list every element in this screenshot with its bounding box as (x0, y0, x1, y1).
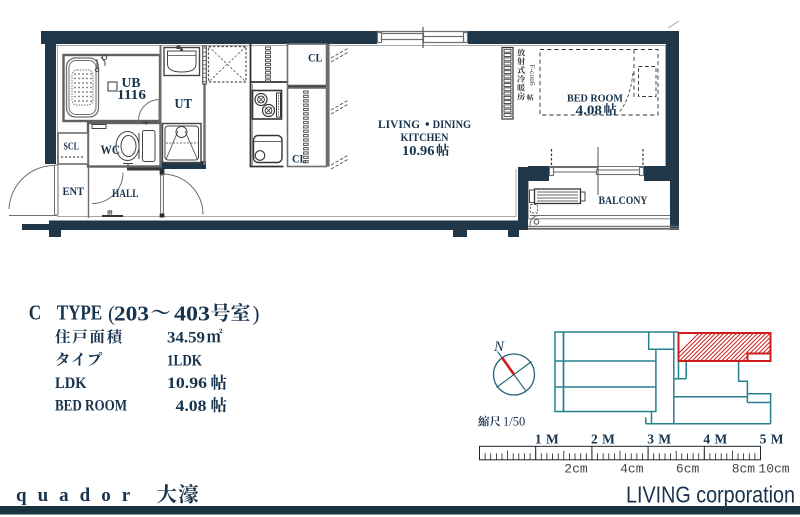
svg-text:3 M: 3 M (647, 432, 671, 447)
svg-text:DINING: DINING (433, 119, 472, 131)
svg-text:BALCONY: BALCONY (599, 195, 648, 207)
svg-text:1LDK: 1LDK (167, 352, 202, 369)
svg-text:CL: CL (292, 154, 307, 166)
svg-text:WC: WC (101, 143, 121, 157)
svg-text:TYPE: TYPE (57, 301, 102, 325)
svg-text:4.08: 4.08 (576, 103, 603, 118)
svg-text:1 M: 1 M (535, 432, 559, 447)
svg-text:2 M: 2 M (591, 432, 615, 447)
svg-text:HALL: HALL (112, 188, 139, 200)
svg-text:34.59: 34.59 (167, 330, 205, 347)
svg-text:5 M: 5 M (760, 432, 784, 447)
svg-text:4cm: 4cm (620, 462, 644, 477)
svg-text:quador: quador (16, 485, 141, 506)
svg-text:ENT: ENT (63, 186, 85, 198)
svg-text:10.96: 10.96 (167, 375, 207, 392)
svg-text:2cm: 2cm (564, 462, 588, 477)
svg-text:10.96: 10.96 (402, 143, 435, 158)
svg-text:): ) (253, 302, 260, 326)
svg-text:BED ROOM: BED ROOM (55, 398, 127, 415)
svg-text:1/50: 1/50 (503, 415, 525, 429)
svg-text:LDK: LDK (55, 375, 87, 392)
svg-text:403: 403 (174, 302, 210, 326)
svg-text:CL: CL (308, 53, 323, 65)
svg-text:UT: UT (175, 96, 193, 111)
svg-text:6cm: 6cm (676, 462, 700, 477)
svg-text:LIVING: LIVING (378, 119, 420, 131)
svg-text:C: C (29, 301, 42, 325)
svg-text:SCL: SCL (64, 141, 80, 153)
svg-text:4.08: 4.08 (176, 398, 207, 415)
svg-text:10cm: 10cm (758, 462, 789, 477)
svg-text:LIVING corporation: LIVING corporation (626, 482, 795, 508)
svg-text:1116: 1116 (117, 87, 146, 102)
svg-text:8cm: 8cm (732, 462, 756, 477)
svg-text:203: 203 (114, 302, 149, 326)
svg-text:N: N (493, 339, 505, 355)
svg-text:4 M: 4 M (703, 432, 727, 447)
svg-text:F-con6: F-con6 (528, 64, 537, 85)
